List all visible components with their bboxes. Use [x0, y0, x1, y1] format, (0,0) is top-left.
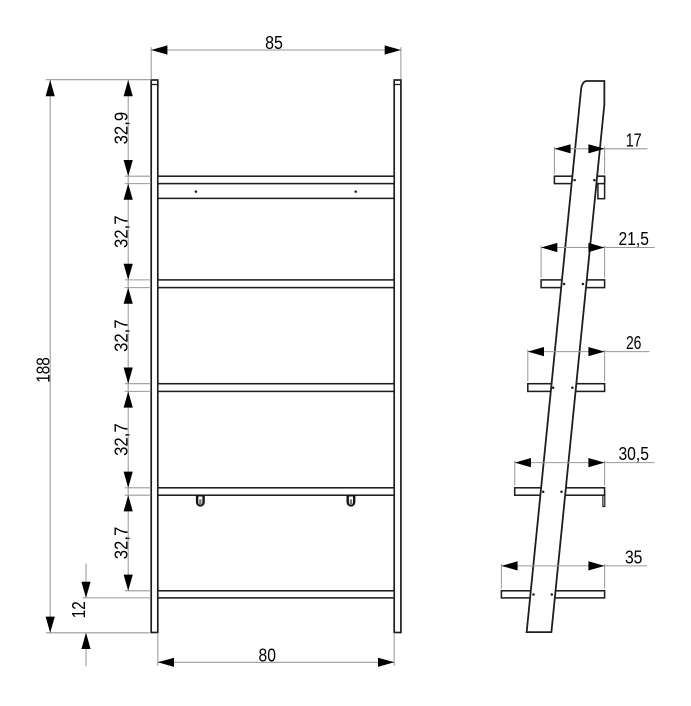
- svg-text:30,5: 30,5: [618, 444, 649, 464]
- svg-text:85: 85: [265, 33, 283, 53]
- svg-text:188: 188: [34, 357, 54, 383]
- svg-text:32,9: 32,9: [111, 112, 131, 145]
- svg-text:21,5: 21,5: [619, 229, 649, 249]
- svg-text:32,7: 32,7: [111, 319, 131, 352]
- svg-text:32,7: 32,7: [111, 527, 131, 560]
- svg-text:35: 35: [625, 548, 643, 568]
- svg-text:17: 17: [626, 130, 642, 150]
- svg-text:26: 26: [626, 333, 642, 353]
- svg-text:32,7: 32,7: [111, 423, 131, 456]
- svg-text:12: 12: [69, 601, 89, 618]
- svg-text:80: 80: [259, 645, 276, 665]
- svg-text:32,7: 32,7: [111, 216, 131, 249]
